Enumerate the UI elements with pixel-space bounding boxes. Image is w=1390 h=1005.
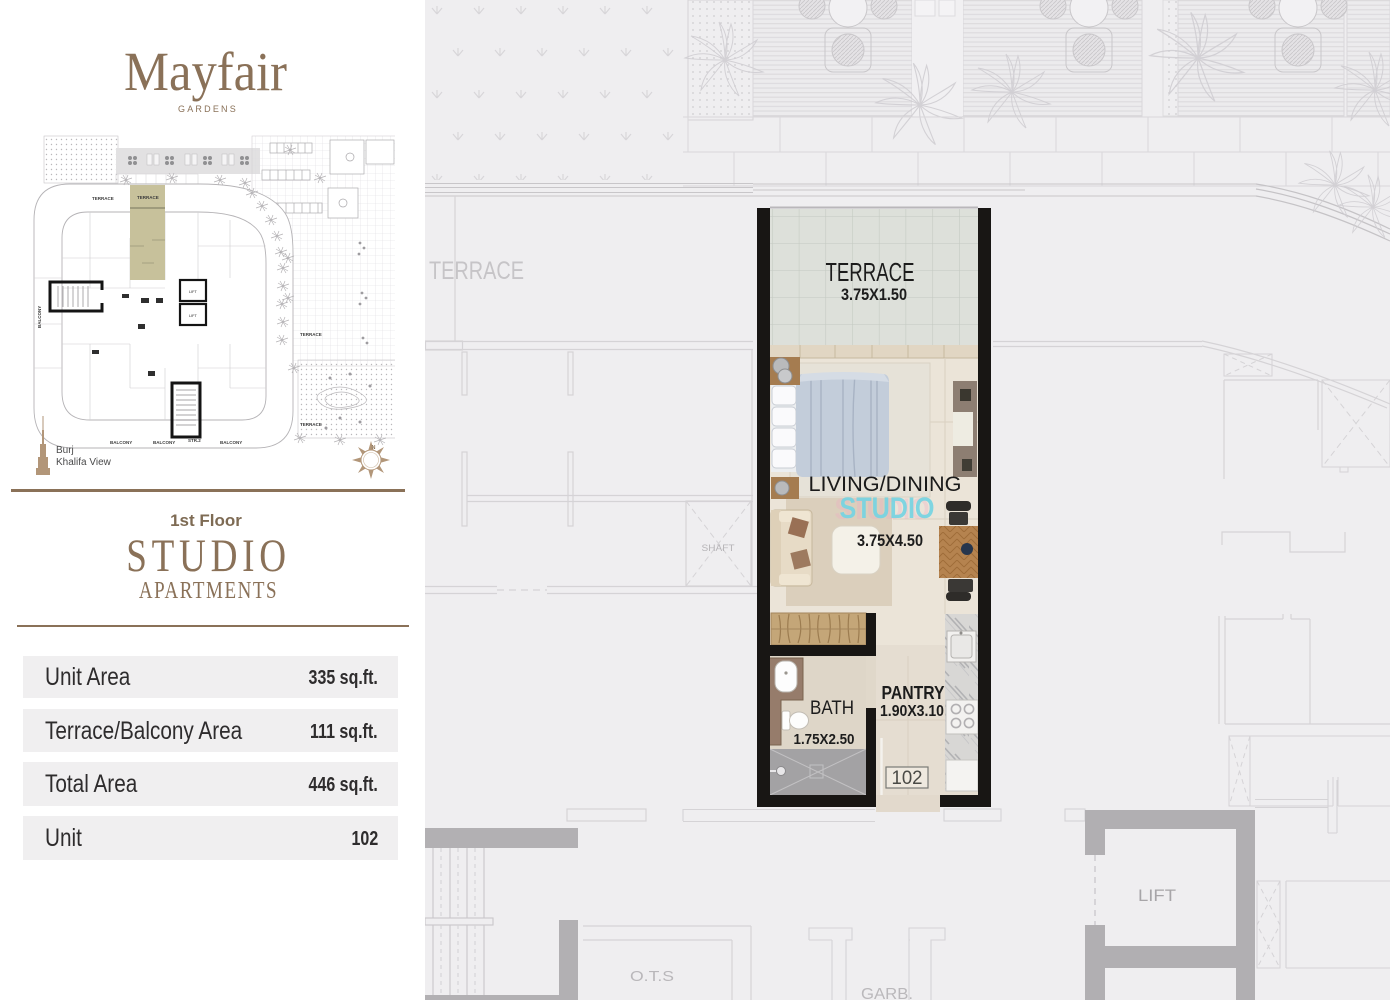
svg-text:TERRACE: TERRACE [429,257,524,285]
svg-text:TERRACE: TERRACE [300,332,322,337]
svg-text:PANTRY: PANTRY [882,683,945,703]
svg-text:N: N [372,445,376,451]
svg-text:BALCONY: BALCONY [153,440,175,445]
svg-text:BALCONY: BALCONY [37,306,42,328]
svg-text:3.75X4.50: 3.75X4.50 [857,532,923,550]
svg-text:1.90X3.10: 1.90X3.10 [880,703,944,720]
svg-text:TERRACE: TERRACE [137,195,159,200]
svg-text:BALCONY: BALCONY [220,440,242,445]
svg-text:Khalifa View: Khalifa View [56,457,112,468]
svg-text:102: 102 [892,768,923,789]
svg-text:LIFT: LIFT [189,290,197,294]
svg-text:3.75X1.50: 3.75X1.50 [841,286,907,304]
svg-text:GARB.: GARB. [861,986,913,1000]
svg-text:STUDIO: STUDIO [840,492,935,525]
svg-text:BATH: BATH [810,698,854,719]
svg-text:LIFT: LIFT [189,314,197,318]
svg-text:O.T.S: O.T.S [630,968,674,985]
svg-text:LIFT: LIFT [1138,886,1176,905]
svg-text:Burj: Burj [56,445,74,456]
svg-text:TERRACE: TERRACE [300,422,322,427]
svg-text:TERRACE: TERRACE [826,257,915,287]
svg-text:STR.2: STR.2 [188,438,201,443]
svg-text:SHAFT: SHAFT [702,543,735,554]
svg-text:BALCONY: BALCONY [110,440,132,445]
svg-text:1.75X2.50: 1.75X2.50 [794,731,855,748]
svg-text:TERRACE: TERRACE [92,196,114,201]
